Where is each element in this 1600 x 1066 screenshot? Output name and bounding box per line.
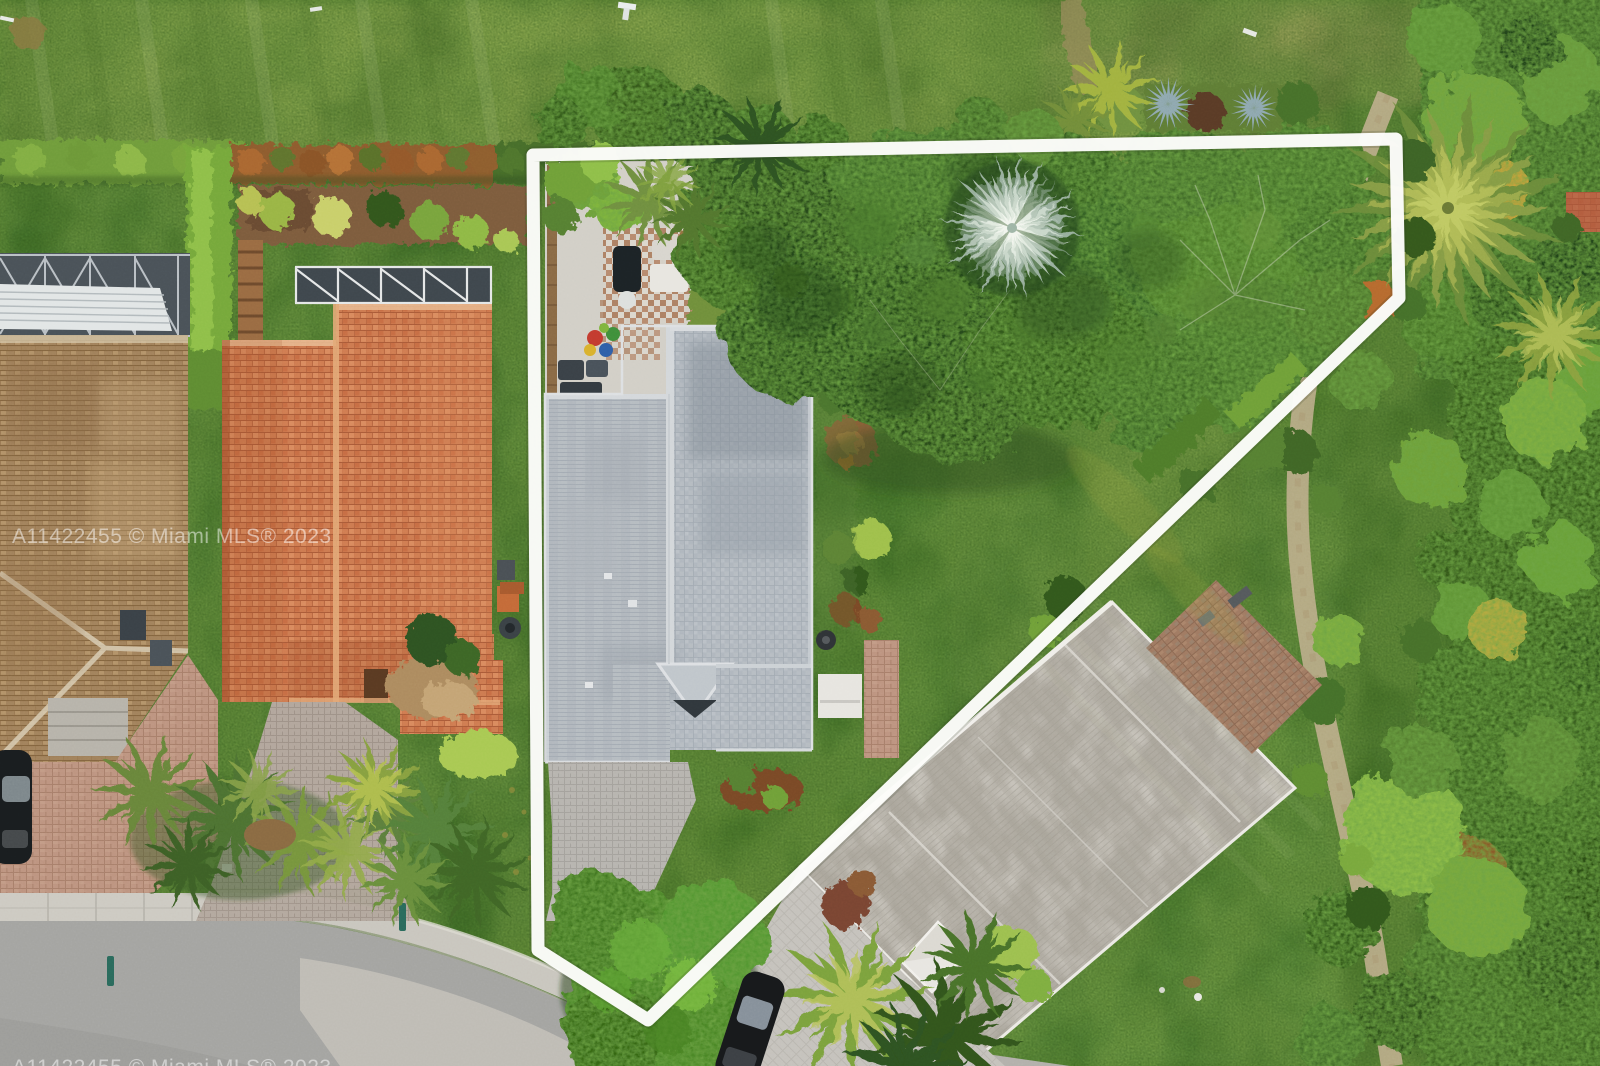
svg-text:A11422455 © Miami MLS® 2023: A11422455 © Miami MLS® 2023 bbox=[12, 525, 332, 548]
svg-text:A11422455 © Miami MLS® 2023: A11422455 © Miami MLS® 2023 bbox=[12, 1056, 332, 1066]
